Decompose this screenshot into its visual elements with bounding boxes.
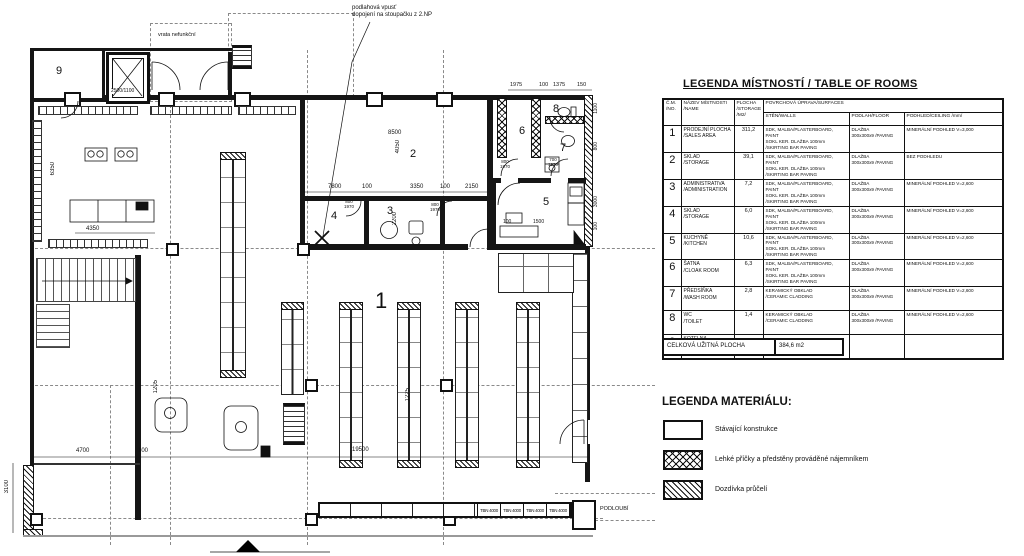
rooms-table: Č.M. /NO. NÁZEV MÍSTNOSTI /NAME PLOCHA /… xyxy=(662,98,1004,360)
material-swatch-existing xyxy=(663,420,703,440)
room-walls: KERAMICKÝ OBKLAD /CERAMIC CLADDING xyxy=(763,311,849,335)
cash-desk xyxy=(155,398,187,432)
display-table-basket xyxy=(127,151,133,157)
room-ceiling: MINERÁLNÍ PODHLED V=2,600 xyxy=(904,206,1003,233)
material-swatch-facade-infill xyxy=(663,480,703,500)
door-arc xyxy=(200,62,228,90)
material-label: Stávající konstrukce xyxy=(715,426,778,433)
door-arc xyxy=(498,183,520,205)
door-arc xyxy=(61,101,78,118)
room-ceiling: MINERÁLNÍ PODHLED V=2,600 xyxy=(904,233,1003,260)
room-name: ADMINISTRATIVA /ADMINISTRATION xyxy=(681,179,734,206)
room-floor xyxy=(849,335,904,360)
room-name: SKLAD /STORAGE xyxy=(681,152,734,179)
room-area: 6,3 xyxy=(734,260,763,287)
room-no: 8 xyxy=(663,311,681,335)
stair-direction-arrow xyxy=(126,278,132,284)
col-header-no: Č.M. /NO. xyxy=(663,99,681,126)
room-name: ŠATNA /CLOAK ROOM xyxy=(681,260,734,287)
total-area-box: CELKOVÁ UŽITNÁ PLOCHA 384,6 m2 xyxy=(662,338,844,356)
door-arc xyxy=(560,420,584,444)
col-header-ceiling: PODHLED/CEILING /mm/ xyxy=(904,113,1003,126)
room-area: 39,1 xyxy=(734,152,763,179)
room-floor: DLAŽBA 300x300x9 /PAVING xyxy=(849,311,904,335)
room-walls: SDK, MALBA/PLASTERBOARD, PAINT SOKL KER.… xyxy=(763,179,849,206)
door-arc xyxy=(550,118,564,132)
table-row: 1 PRODEJNÍ PLOCHA /SALES AREA 311,2 SDK,… xyxy=(663,126,1003,153)
room-ceiling: BEZ PODHLEDU xyxy=(904,152,1003,179)
cashier-chair xyxy=(165,408,176,419)
room-area: 7,2 xyxy=(734,179,763,206)
total-area-value: 384,6 m2 xyxy=(774,340,842,354)
table-row: 2 SKLAD /STORAGE 39,1 SDK, MALBA/PLASTER… xyxy=(663,152,1003,179)
display-table-basket xyxy=(118,151,124,157)
room-area: 6,0 xyxy=(734,206,763,233)
material-swatch-light-partition xyxy=(663,450,703,470)
rooms-table-title: LEGENDA MÍSTNOSTÍ / TABLE OF ROOMS xyxy=(683,78,917,90)
table-row: 5 KUCHYNĚ /KITCHEN 10,6 SDK, MALBA/PLAST… xyxy=(663,233,1003,260)
display-table xyxy=(115,148,137,161)
room-floor: DLAŽBA 300x300x9 /PAVING xyxy=(849,152,904,179)
room-area: 2,8 xyxy=(734,287,763,311)
room-ceiling: MINERÁLNÍ PODHLED V=2,600 xyxy=(904,287,1003,311)
room-ceiling: MINERÁLNÍ PODHLED V=2,600 xyxy=(904,179,1003,206)
corner-wedge xyxy=(574,231,584,244)
room-no: 4 xyxy=(663,206,681,233)
room-ceiling: MINERÁLNÍ PODHLED V=2,600 xyxy=(904,260,1003,287)
table-row: 6 ŠATNA /CLOAK ROOM 6,3 SDK, MALBA/PLAST… xyxy=(663,260,1003,287)
room-area: 311,2 xyxy=(734,126,763,153)
floor-plan: vrata nefunkční 2500/1100 xyxy=(0,0,656,556)
room-name: PŘEDSÍŇKA /WASH ROOM xyxy=(681,287,734,311)
drawing-sheet: { "plan": { "rooms": { "n1":"1","n2":"2"… xyxy=(0,0,1024,556)
room-name: WC /TOILET xyxy=(681,311,734,335)
room-walls: SDK, MALBA/PLASTERBOARD, PAINT SOKL KER.… xyxy=(763,260,849,287)
room-no: 3 xyxy=(663,179,681,206)
north-entry-triangle xyxy=(236,540,260,552)
room-no: 1 xyxy=(663,126,681,153)
door-arc xyxy=(470,229,488,247)
col-header-walls: STĚN/WALLS xyxy=(763,113,849,126)
cashier-chair xyxy=(236,422,247,433)
display-table-basket xyxy=(88,151,94,157)
total-area-label: CELKOVÁ UŽITNÁ PLOCHA xyxy=(664,340,774,354)
material-label: Dozdívka průčelí xyxy=(715,486,767,493)
table-row: 3 ADMINISTRATIVA /ADMINISTRATION 7,2 SDK… xyxy=(663,179,1003,206)
room-floor: DLAŽBA 300x300x9 /PAVING xyxy=(849,287,904,311)
room-area: 10,6 xyxy=(734,233,763,260)
kitchen-sink xyxy=(570,187,582,196)
sink xyxy=(562,136,575,147)
room-floor: DLAŽBA 300x300x9 /PAVING xyxy=(849,233,904,260)
room-name: PRODEJNÍ PLOCHA /SALES AREA xyxy=(681,126,734,153)
display-table xyxy=(85,148,107,161)
room-floor: DLAŽBA 300x300x9 /PAVING xyxy=(849,260,904,287)
cash-desk-unit xyxy=(261,446,270,457)
room-walls: SDK, MALBA/PLASTERBOARD, PAINT SOKL KER.… xyxy=(763,152,849,179)
toilet-bowl xyxy=(558,108,570,117)
office-chair xyxy=(409,221,423,234)
room-area: 1,4 xyxy=(734,311,763,335)
table-row: 4 SKLAD /STORAGE 6,0 SDK, MALBA/PLASTERB… xyxy=(663,206,1003,233)
kitchen-bench xyxy=(500,226,538,237)
room-no: 2 xyxy=(663,152,681,179)
room-ceiling xyxy=(904,335,1003,360)
room-name: SKLAD /STORAGE xyxy=(681,206,734,233)
col-header-surfaces: POVRCHOVÁ ÚPRAVA/SURFACES xyxy=(763,99,1003,113)
room-floor: DLAŽBA 300x300x9 /PAVING xyxy=(849,206,904,233)
room-walls: SDK, MALBA/PLASTERBOARD, PAINT SOKL KER.… xyxy=(763,126,849,153)
material-label: Lehké příčky a předstěny prováděné nájem… xyxy=(715,456,868,463)
room-walls: SDK, MALBA/PLASTERBOARD, PAINT SOKL KER.… xyxy=(763,233,849,260)
materials-legend-title: LEGENDA MATERIÁLU: xyxy=(662,396,792,408)
register xyxy=(136,202,148,210)
table-row: 8 WC /TOILET 1,4 KERAMICKÝ OBKLAD /CERAM… xyxy=(663,311,1003,335)
col-header-floor: PODLAH/FLOOR xyxy=(849,113,904,126)
door-arc xyxy=(437,201,452,216)
toilet-tank xyxy=(571,107,576,117)
room-no: 7 xyxy=(663,287,681,311)
room-ceiling: MINERÁLNÍ PODHLED V=3,000 xyxy=(904,126,1003,153)
door-arc xyxy=(551,159,568,176)
display-table-basket xyxy=(97,151,103,157)
room-floor: DLAŽBA 300x300x9 /PAVING xyxy=(849,126,904,153)
room-floor: DLAŽBA 300x300x9 /PAVING xyxy=(849,179,904,206)
cash-desk xyxy=(224,406,258,450)
kitchen-sink-unit xyxy=(568,183,584,203)
door-arc xyxy=(346,201,361,216)
col-header-name: NÁZEV MÍSTNOSTI /NAME xyxy=(681,99,734,126)
drain-leader-line xyxy=(323,22,370,236)
room-no: 6 xyxy=(663,260,681,287)
table-row: 7 PŘEDSÍŇKA /WASH ROOM 2,8 KERAMICKÝ OBK… xyxy=(663,287,1003,311)
office-table xyxy=(381,222,398,239)
room-walls: SDK, MALBA/PLASTERBOARD, PAINT SOKL KER.… xyxy=(763,206,849,233)
kitchen-table xyxy=(506,213,522,223)
plan-overlay xyxy=(0,0,656,556)
door-arc xyxy=(501,159,518,176)
kitchen-counter xyxy=(568,203,584,225)
room-walls: KERAMICKÝ OBKLAD /CERAMIC CLADDING xyxy=(763,287,849,311)
door-arc xyxy=(152,62,180,90)
room-name: KUCHYNĚ /KITCHEN xyxy=(681,233,734,260)
col-header-area: PLOCHA /STORAGE /M2/ xyxy=(734,99,763,126)
room-ceiling: MINERÁLNÍ PODHLED V=2,600 xyxy=(904,311,1003,335)
office-chair-seat xyxy=(412,237,420,245)
room-no: 5 xyxy=(663,233,681,260)
